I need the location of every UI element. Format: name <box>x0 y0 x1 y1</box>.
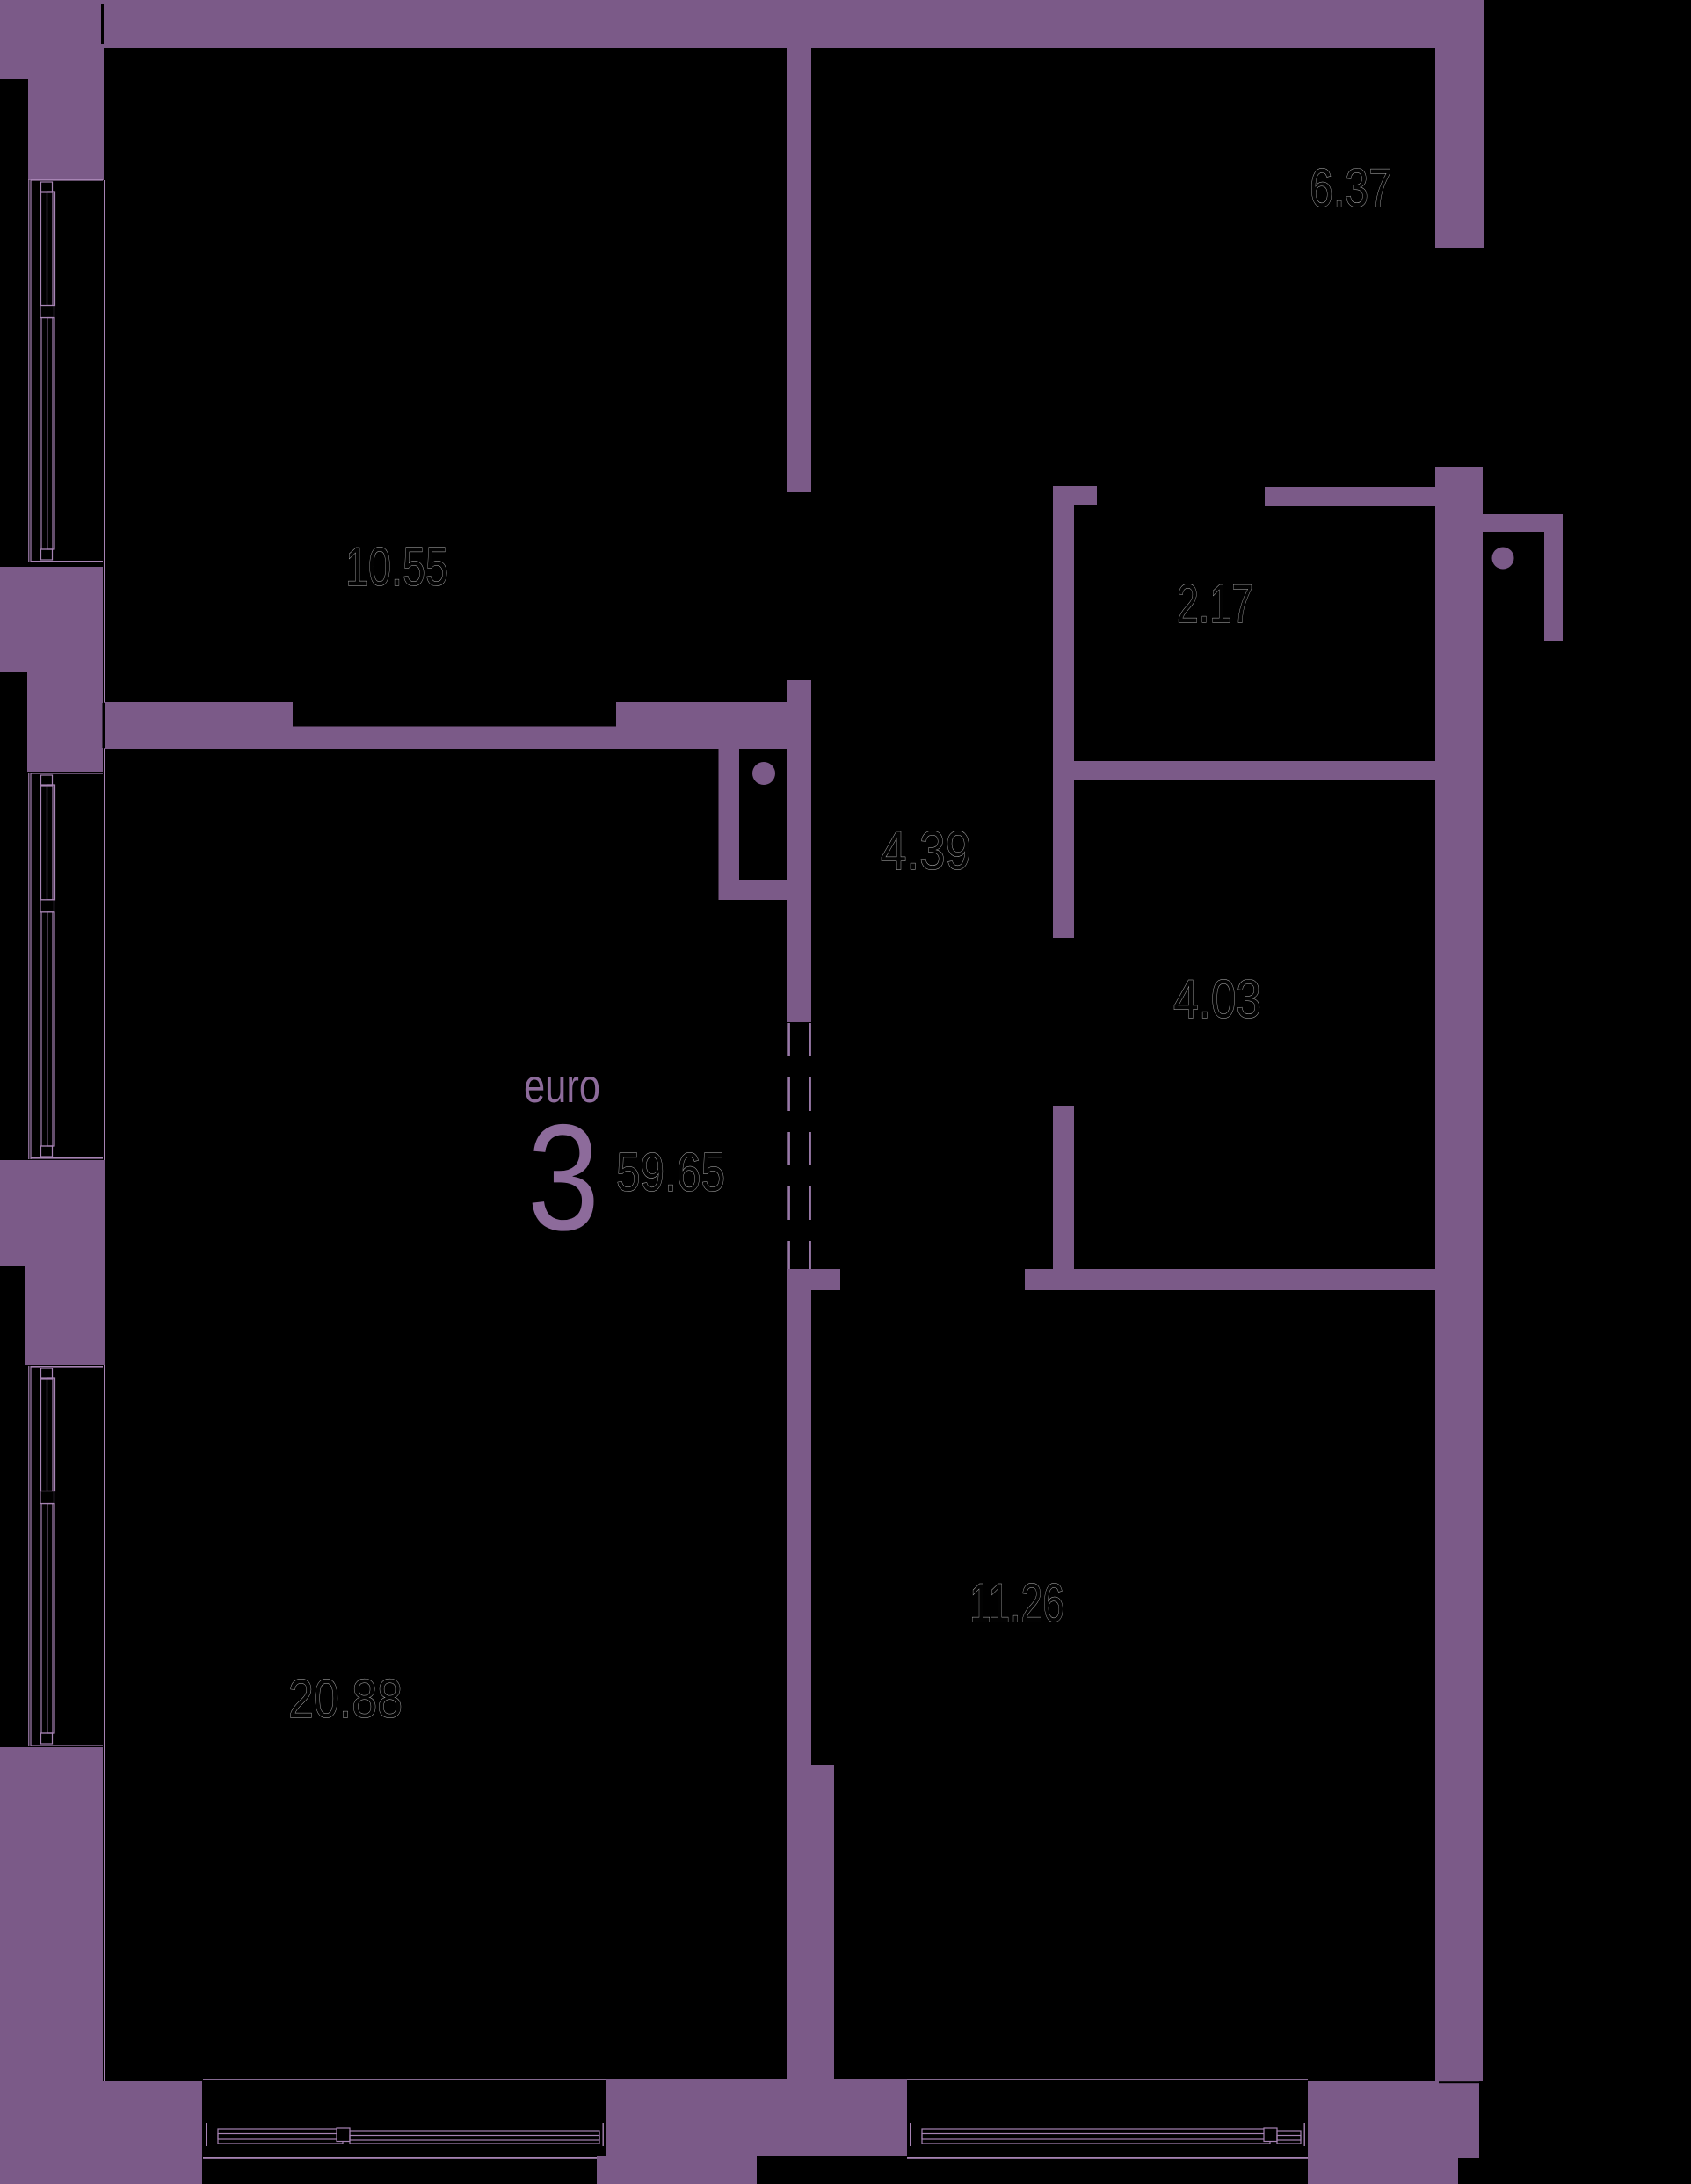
svg-text:2.17: 2.17 <box>1177 574 1253 635</box>
svg-text:10.55: 10.55 <box>345 537 448 598</box>
svg-text:6.37: 6.37 <box>1310 158 1392 219</box>
svg-text:20.88: 20.88 <box>288 1669 403 1730</box>
svg-text:4.39: 4.39 <box>881 821 971 882</box>
svg-text:59.65: 59.65 <box>616 1143 725 1203</box>
svg-text:3: 3 <box>527 1093 599 1262</box>
svg-text:4.03: 4.03 <box>1173 969 1261 1030</box>
svg-text:11.26: 11.26 <box>969 1573 1064 1634</box>
